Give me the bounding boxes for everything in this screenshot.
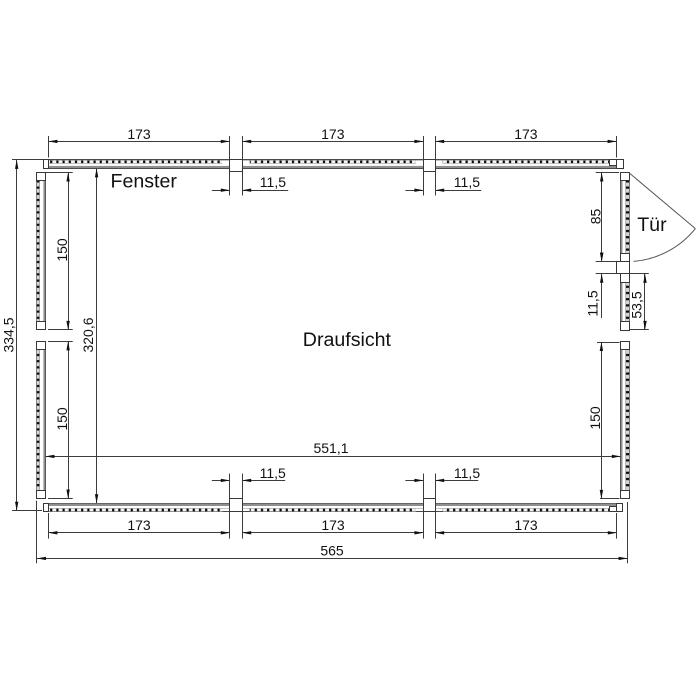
svg-text:173: 173 — [127, 517, 151, 533]
svg-text:150: 150 — [54, 407, 70, 431]
svg-text:11,5: 11,5 — [260, 174, 286, 190]
svg-text:173: 173 — [127, 126, 151, 142]
svg-text:53,5: 53,5 — [629, 291, 645, 318]
svg-text:11,5: 11,5 — [454, 174, 480, 190]
svg-text:551,1: 551,1 — [313, 440, 348, 456]
svg-text:173: 173 — [321, 126, 345, 142]
svg-text:11,5: 11,5 — [584, 290, 600, 316]
svg-text:Tür: Tür — [637, 214, 667, 236]
svg-text:11,5: 11,5 — [454, 465, 480, 481]
svg-text:85: 85 — [587, 209, 603, 225]
svg-text:334,5: 334,5 — [1, 317, 17, 352]
svg-text:11,5: 11,5 — [260, 465, 286, 481]
svg-text:173: 173 — [514, 517, 538, 533]
svg-text:173: 173 — [321, 517, 345, 533]
svg-text:Draufsicht: Draufsicht — [303, 329, 392, 351]
svg-text:Fenster: Fenster — [111, 171, 178, 193]
svg-text:320,6: 320,6 — [80, 317, 96, 352]
svg-text:150: 150 — [587, 406, 603, 430]
svg-text:565: 565 — [320, 542, 344, 558]
svg-text:150: 150 — [54, 238, 70, 262]
svg-text:173: 173 — [514, 126, 538, 142]
